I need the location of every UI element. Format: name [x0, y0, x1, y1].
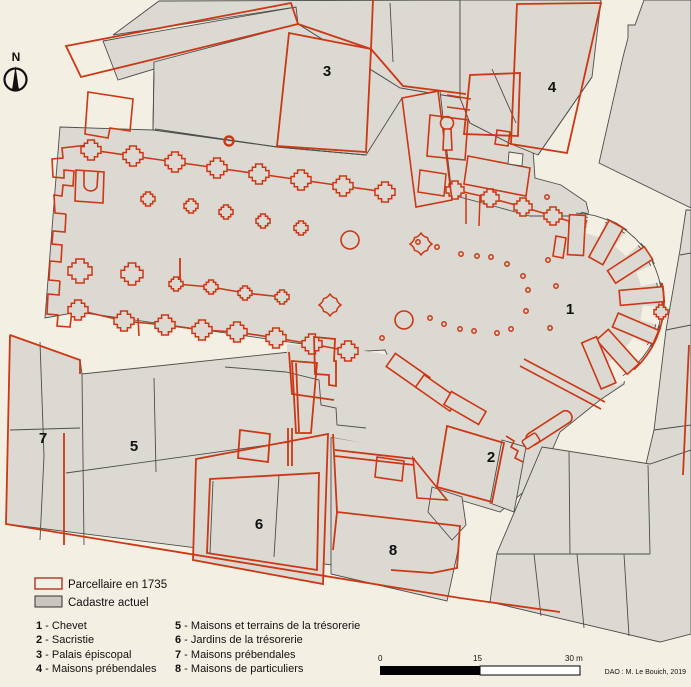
svg-text:30 m: 30 m	[565, 654, 583, 663]
svg-text:4: 4	[548, 79, 557, 96]
svg-text:5: 5	[130, 438, 138, 455]
svg-text:8: 8	[389, 542, 397, 559]
svg-text:Parcellaire en 1735: Parcellaire en 1735	[68, 579, 167, 591]
svg-text:4 - Maisons prébendales: 4 - Maisons prébendales	[36, 663, 157, 675]
svg-text:7: 7	[39, 430, 47, 447]
svg-text:N: N	[12, 50, 21, 64]
svg-text:Cadastre actuel: Cadastre actuel	[68, 597, 149, 609]
svg-text:3: 3	[323, 63, 331, 80]
svg-text:6 - Jardins de la trésorerie: 6 - Jardins de la trésorerie	[175, 634, 303, 646]
svg-text:5 - Maisons et terrains de la: 5 - Maisons et terrains de la trésorerie	[175, 620, 360, 632]
svg-text:3 - Palais épiscopal: 3 - Palais épiscopal	[36, 649, 131, 661]
svg-text:2: 2	[487, 449, 495, 466]
svg-text:8 - Maisons de particuliers: 8 - Maisons de particuliers	[175, 663, 304, 675]
svg-text:6: 6	[255, 516, 263, 533]
svg-text:7 - Maisons prébendales: 7 - Maisons prébendales	[175, 649, 296, 661]
svg-text:15: 15	[473, 654, 482, 663]
svg-text:1: 1	[566, 301, 574, 318]
svg-text:DAO : M. Le Bouich, 2019: DAO : M. Le Bouich, 2019	[605, 669, 686, 676]
svg-text:1 - Chevet: 1 - Chevet	[36, 620, 87, 632]
svg-text:2 - Sacristie: 2 - Sacristie	[36, 634, 94, 646]
svg-text:0: 0	[378, 654, 383, 663]
